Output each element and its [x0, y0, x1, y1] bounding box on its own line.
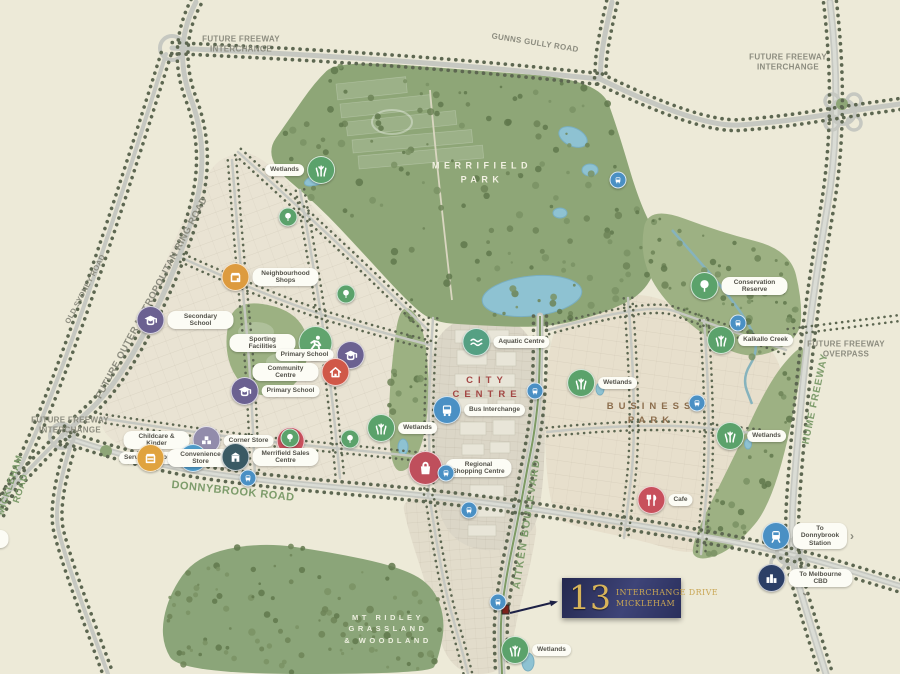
bag-icon: [409, 451, 443, 485]
school-icon: [231, 377, 259, 405]
badge-convenience-store: Convenience Store: [137, 444, 234, 472]
chevron-down-icon: ›: [800, 592, 812, 596]
tree-icon: [281, 429, 300, 448]
badge-wetlands-business-nw: Wetlands: [567, 369, 637, 397]
badge-label: Secondary School: [168, 311, 234, 330]
badge-regional-shopping-centre: Regional Shopping Centre: [409, 451, 512, 485]
badge-label: Wetlands: [265, 164, 304, 175]
tree-icon: [691, 272, 719, 300]
reeds-icon: [567, 369, 595, 397]
badge-label: To Donnybrook Station: [793, 523, 847, 549]
badge-park-tree-3: [281, 429, 300, 448]
badge-label: Cafe: [668, 494, 692, 505]
callout-street: INTERCHANGE DRIVE: [616, 588, 718, 597]
badge-primary-school-2: Primary School: [231, 377, 320, 405]
store-icon: [137, 444, 165, 472]
badge-secondary-school: Secondary School: [137, 306, 234, 334]
area-label-mt-ridley: MT RIDLEYGRASSLAND& WOODLAND: [344, 612, 432, 646]
reeds-icon: [307, 156, 335, 184]
badge-label: To Melbourne Airport: [0, 530, 9, 549]
badge-label: Bus Interchange: [464, 404, 525, 415]
tree-icon: [341, 430, 360, 449]
waves-icon: [462, 328, 490, 356]
tree-icon: [279, 208, 298, 227]
bus-stop-icon: [610, 172, 627, 189]
reeds-icon: [501, 636, 529, 664]
badge-label: Kalkallo Creek: [738, 334, 793, 345]
road-label-donnybrook-road: DONNYBROOK ROAD: [171, 479, 295, 505]
train-icon: [762, 522, 790, 550]
badge-label: Wetlands: [598, 377, 637, 388]
badge-aquatic-centre: Aquatic Centre: [462, 328, 549, 356]
road-label-old-sydney-road: OLD SYDNEY ROAD: [63, 253, 107, 325]
building-icon: [222, 443, 250, 471]
road-label-future-freeway-interchange-ne: FUTURE FREEWAYINTERCHANGE: [749, 52, 827, 71]
badge-park-tree-4: [341, 430, 360, 449]
badge-label: Regional Shopping Centre: [446, 459, 512, 478]
road-label-future-outer-metropolitan-ring-road: FUTURE OUTER METROPOLITAN RING ROAD: [94, 195, 211, 401]
badge-label: Merrifield Sales Centre: [253, 448, 319, 467]
tree-icon: [337, 285, 356, 304]
badge-label: Wetlands: [398, 422, 437, 433]
road-label-aitken-boulevard: AITKEN BOULEVARD: [510, 458, 543, 590]
area-label-business-park: BUSINESSPARK: [607, 400, 696, 429]
map-overlay: FUTURE FREEWAYINTERCHANGEGUNNS GULLY ROA…: [0, 0, 900, 674]
shop-icon: [222, 263, 250, 291]
bus-stop-icon: [689, 395, 706, 412]
community-icon: [322, 358, 350, 386]
badge-wetlands-city: Wetlands: [367, 414, 437, 442]
bus-stop-icon: [490, 594, 507, 611]
bus-stop-icon: [730, 315, 747, 332]
reeds-icon: [716, 422, 744, 450]
badge-neighbourhood-shops: Neighbourhood Shops: [222, 263, 319, 291]
badge-kalkallo-creek: Kalkallo Creek: [707, 326, 793, 354]
badge-label: Conservation Reserve: [722, 277, 788, 296]
badge-merrifield-sales-centre: Merrifield Sales Centre: [222, 443, 319, 471]
badge-park-tree-1: [279, 208, 298, 227]
badge-label: Aquatic Centre: [493, 336, 549, 347]
callout-number: 13: [569, 580, 611, 616]
property-callout: 13 INTERCHANGE DRIVE MICKLEHAM: [562, 578, 681, 618]
badge-label: Wetlands: [532, 644, 571, 655]
road-label-future-freeway-interchange-sw: FUTURE FREEWAYINTERCHANGE: [31, 415, 109, 434]
reeds-icon: [707, 326, 735, 354]
bus-stop-icon: [527, 383, 544, 400]
badge-wetlands-business-se: Wetlands: [716, 422, 786, 450]
badge-wetlands-south: Wetlands: [501, 636, 571, 664]
road-label-gunns-gully-road: GUNNS GULLY ROAD: [491, 31, 579, 54]
school-icon: [137, 306, 165, 334]
badge-to-donnybrook-station: To Donnybrook Station›: [762, 522, 854, 550]
callout-address: INTERCHANGE DRIVE MICKLEHAM: [616, 588, 718, 608]
badge-wetlands-nw: Wetlands: [265, 156, 335, 184]
badge-conservation-reserve: Conservation Reserve: [691, 272, 788, 300]
road-label-mickleham-road: MICKLEHAMROAD: [0, 454, 36, 521]
bus-stop-icon: [240, 470, 257, 487]
bus-stop-icon: [461, 502, 478, 519]
badge-to-melbourne-airport: To Melbourne Airport: [0, 525, 9, 553]
area-label-merrifield-park: MERRIFIELDPARK: [432, 160, 532, 187]
reeds-icon: [367, 414, 395, 442]
road-label-hume-freeway: HUME FREEWAY: [800, 352, 831, 445]
chevron-right-icon: ›: [850, 530, 854, 542]
badge-label: Neighbourhood Shops: [253, 268, 319, 287]
badge-cafe: Cafe: [637, 486, 692, 514]
bus-stop-icon: [438, 465, 455, 482]
road-label-future-freeway-interchange-nw: FUTURE FREEWAYINTERCHANGE: [202, 34, 280, 53]
city-icon: [758, 564, 786, 592]
callout-suburb: MICKLEHAM: [616, 599, 718, 608]
badge-bus-interchange: Bus Interchange: [433, 396, 525, 424]
badge-label: Primary School: [262, 385, 320, 396]
bus-icon: [433, 396, 461, 424]
badge-park-tree-2: [337, 285, 356, 304]
badge-to-melbourne-cbd: To Melbourne CBD: [758, 564, 853, 592]
dining-icon: [637, 486, 665, 514]
badge-label: To Melbourne CBD: [789, 569, 853, 588]
badge-label: Wetlands: [747, 430, 786, 441]
merrifield-masterplan-map: FUTURE FREEWAYINTERCHANGEGUNNS GULLY ROA…: [0, 0, 900, 674]
